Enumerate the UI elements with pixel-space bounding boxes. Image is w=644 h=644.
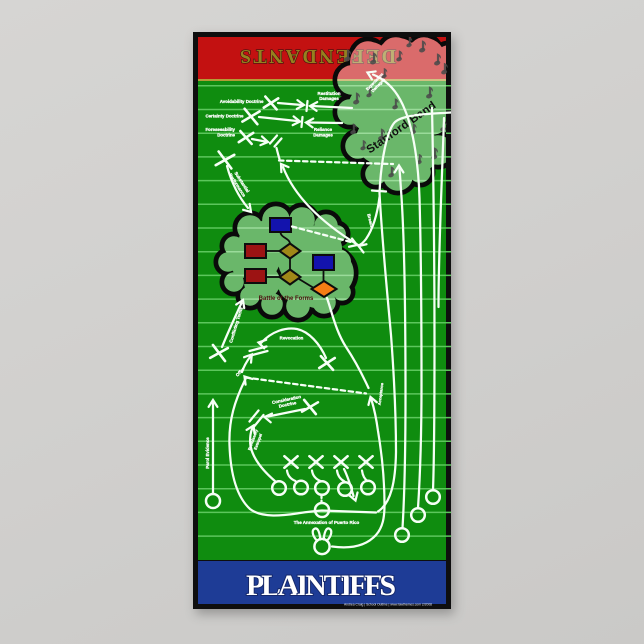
svg-text:Damages: Damages <box>313 133 333 138</box>
svg-text:Andrea Craig | School Outlin: Andrea Craig | School Outline | www.lawt… <box>344 603 432 607</box>
svg-text:Damages: Damages <box>319 96 339 101</box>
svg-text:Reliance: Reliance <box>314 127 333 132</box>
svg-text:PLAINTIFFS: PLAINTIFFS <box>246 569 396 602</box>
svg-text:The Annexation of Puerto Rico: The Annexation of Puerto Rico <box>294 520 360 525</box>
svg-text:Battle of the Forms: Battle of the Forms <box>259 296 314 302</box>
svg-text:Parol Evidence: Parol Evidence <box>205 437 210 469</box>
svg-text:Foreseeability: Foreseeability <box>205 127 235 132</box>
svg-text:Certainty Doctrine: Certainty Doctrine <box>205 114 244 119</box>
svg-text:Doctrine: Doctrine <box>217 133 235 138</box>
svg-text:Avoidability Doctrine: Avoidability Doctrine <box>220 99 264 104</box>
svg-text:Revocation: Revocation <box>280 336 304 341</box>
